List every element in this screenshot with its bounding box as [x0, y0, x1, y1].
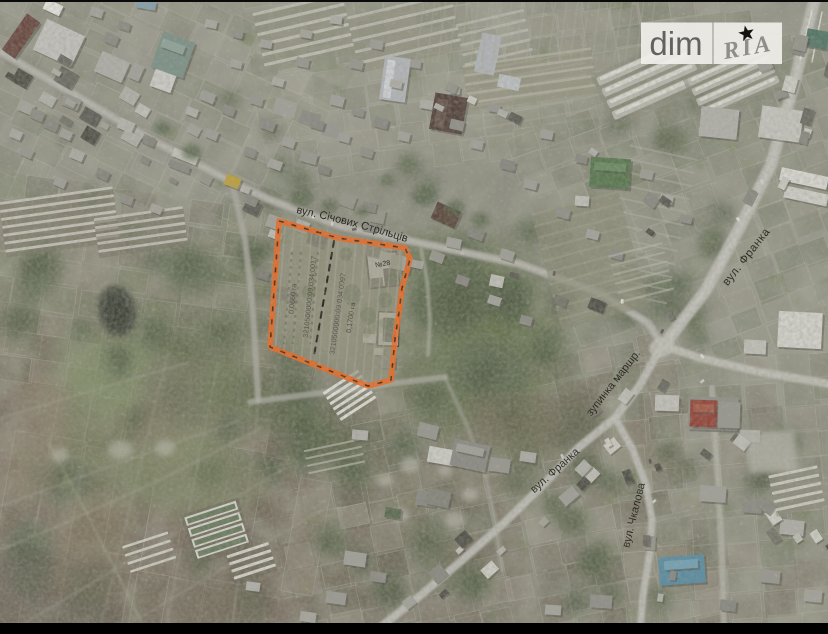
svg-text:dim: dim [649, 25, 702, 62]
